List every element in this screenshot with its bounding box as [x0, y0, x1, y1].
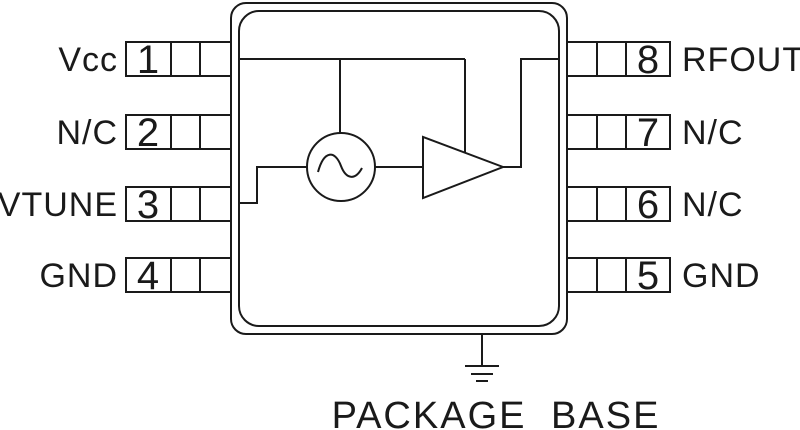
- amplifier-triangle: [423, 137, 503, 198]
- ground-symbol: [465, 334, 499, 381]
- pin-4-label: GND: [39, 257, 118, 295]
- pin-1-label: Vcc: [58, 41, 118, 79]
- pin-3-number: 3: [137, 183, 159, 227]
- sine-wave-icon: [318, 155, 362, 177]
- pin-3: 3: [126, 183, 231, 227]
- pin-8-label: RFOUT: [682, 41, 800, 79]
- pin-2: 2: [126, 111, 231, 155]
- vco-pinout-schematic: 1 Vcc 2 N/C 3 VTUNE 4 GND 8 RFOUT 7 N/C: [0, 0, 800, 430]
- pin-6: 6: [567, 183, 670, 227]
- pin-1: 1: [126, 38, 231, 82]
- pin-5-label: GND: [682, 257, 761, 295]
- pin-1-number: 1: [137, 38, 159, 82]
- pin-8: 8: [567, 38, 670, 82]
- pin-4: 4: [126, 254, 231, 298]
- pin-7-number: 7: [637, 111, 659, 155]
- pin-2-label: N/C: [56, 114, 118, 152]
- pin-6-number: 6: [637, 183, 659, 227]
- rfout-wire: [503, 59, 559, 167]
- pin-6-label: N/C: [682, 186, 744, 224]
- pin-3-label: VTUNE: [0, 186, 118, 224]
- pin-5-number: 5: [637, 254, 659, 298]
- oscillator-symbol: [307, 133, 375, 201]
- package-outline-outer: [231, 3, 567, 334]
- pin-7: 7: [567, 111, 670, 155]
- pin-4-number: 4: [137, 254, 159, 298]
- vtune-wire: [240, 167, 307, 203]
- package-base-label: PACKAGE BASE: [332, 395, 661, 430]
- pin-7-label: N/C: [682, 114, 744, 152]
- pin-5: 5: [567, 254, 670, 298]
- pin-2-number: 2: [137, 111, 159, 155]
- pin-8-number: 8: [637, 38, 659, 82]
